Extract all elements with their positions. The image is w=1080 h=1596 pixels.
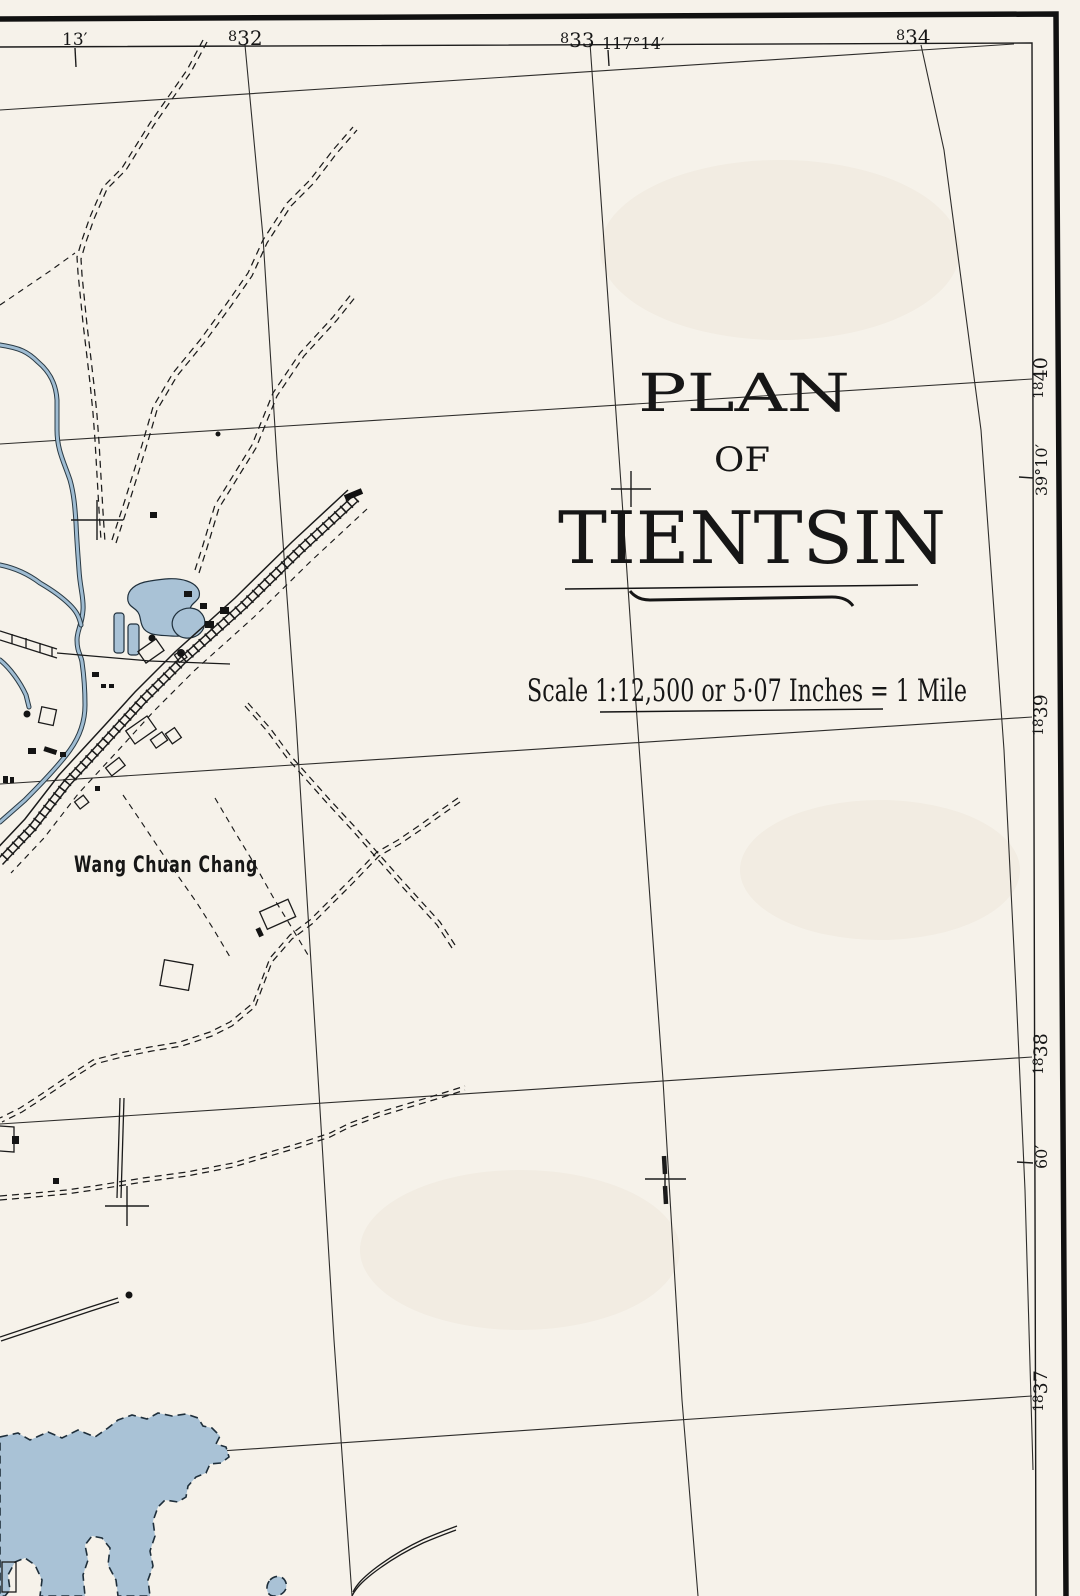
right-tick-60min <box>1017 1162 1033 1163</box>
building <box>200 603 207 609</box>
building <box>60 752 66 757</box>
paper-stain <box>600 160 960 340</box>
pond-basin <box>114 613 124 653</box>
top-label-833-sup: 8 <box>560 31 569 47</box>
top-label-832-sup: 8 <box>228 29 237 45</box>
building <box>95 786 100 791</box>
right-label-1839-sup: 18 <box>1031 718 1047 735</box>
right-label-1840-sup: 18 <box>1031 381 1047 398</box>
right-label-1838-main: 38 <box>1030 1033 1052 1057</box>
pond <box>172 608 205 638</box>
map-title-line1: PLAN <box>638 364 850 424</box>
right-label-1838-sup: 18 <box>1031 1057 1047 1074</box>
building <box>3 776 8 783</box>
top-label-832-main: 32 <box>237 26 262 50</box>
right-label-1839-main: 39 <box>1030 694 1052 718</box>
paper-stain <box>360 1170 680 1330</box>
right-label-latitude: 39°10′ <box>1032 443 1051 496</box>
building-dot <box>24 711 31 718</box>
building <box>53 1178 59 1184</box>
top-label-834-sup: 8 <box>896 28 905 44</box>
right-label-1837-main: 37 <box>1030 1370 1052 1394</box>
building <box>12 1136 19 1144</box>
building <box>220 607 229 614</box>
map-title-line3: TIENTSIN <box>558 496 946 580</box>
top-label-longitude: 117°14′ <box>602 34 665 53</box>
map-title-line2: OF <box>714 440 770 480</box>
building <box>92 672 99 677</box>
top-tick-longitude <box>608 50 609 66</box>
building <box>101 684 106 688</box>
building <box>109 684 114 688</box>
building <box>150 512 157 518</box>
lake-lobe <box>267 1576 286 1596</box>
building-dot <box>216 432 221 437</box>
right-label-60min: 60′ <box>1032 1145 1051 1169</box>
map-sheet: PLAN OF TIENTSIN Scale 1:12,500 or 5·07 … <box>0 0 1080 1596</box>
right-label-1837-sup: 18 <box>1031 1394 1047 1411</box>
paper-stain <box>740 800 1020 940</box>
top-label-833-main: 33 <box>569 28 594 52</box>
building <box>28 748 36 754</box>
pond-basin <box>128 624 139 655</box>
scale-statement: Scale 1:12,500 or 5·07 Inches = 1 Mile <box>527 673 967 709</box>
right-label-1840-main: 40 <box>1030 357 1052 381</box>
top-tick-13min <box>75 48 76 67</box>
building <box>184 591 192 597</box>
top-label-834-main: 34 <box>905 25 930 49</box>
top-label-13min: 13′ <box>62 30 88 50</box>
building <box>10 777 14 783</box>
place-label-wang-chuan-chang: Wang Chuan Chang <box>74 853 258 878</box>
right-tick-latitude <box>1019 477 1033 478</box>
building-dot <box>126 1292 133 1299</box>
building <box>205 621 214 628</box>
